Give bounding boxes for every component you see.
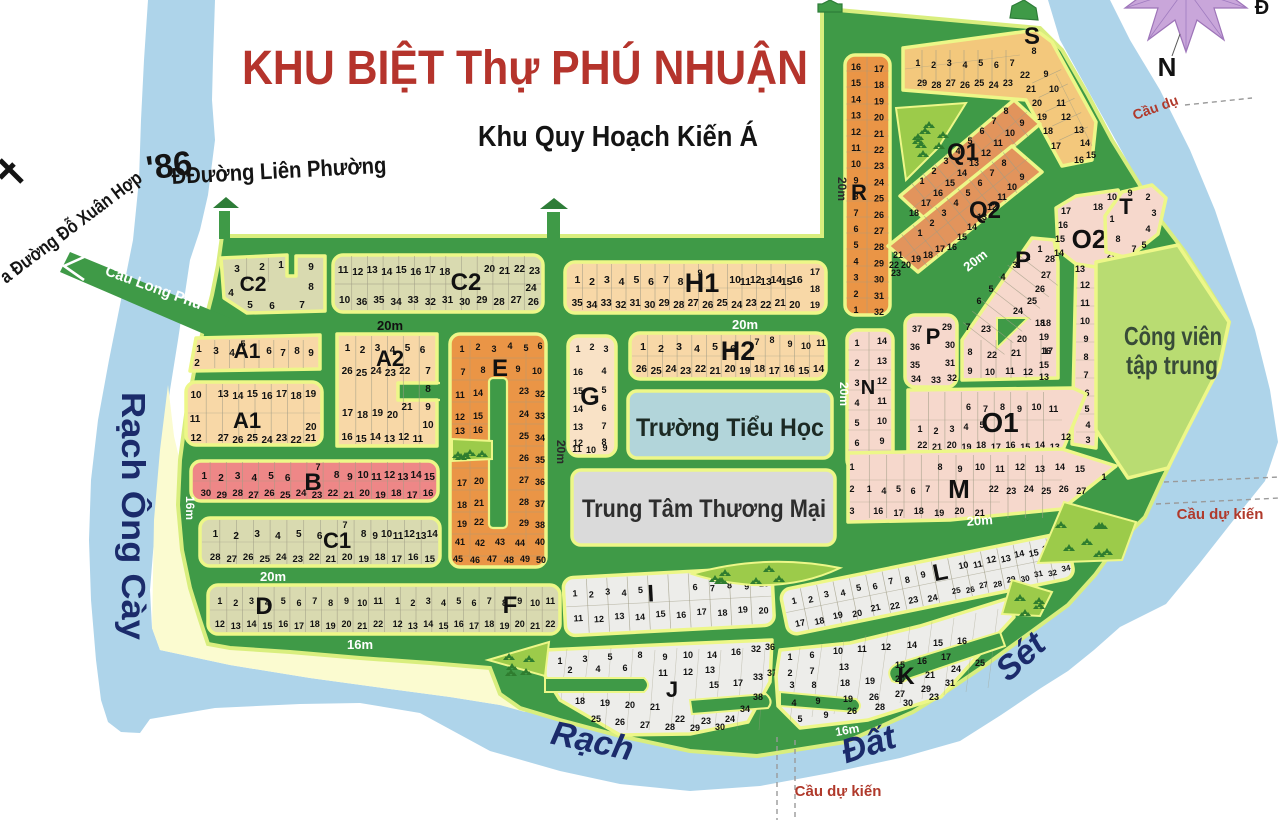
svg-text:20: 20: [484, 264, 496, 275]
svg-text:19: 19: [1039, 332, 1049, 342]
svg-text:4: 4: [963, 422, 968, 432]
svg-text:1: 1: [853, 305, 858, 315]
svg-text:1: 1: [572, 588, 578, 598]
svg-text:12: 12: [981, 148, 991, 158]
svg-text:8: 8: [480, 365, 485, 375]
svg-text:6: 6: [976, 296, 981, 306]
svg-text:6: 6: [420, 345, 426, 356]
svg-text:20: 20: [851, 608, 863, 620]
svg-text:23: 23: [907, 594, 919, 606]
svg-text:4: 4: [1145, 224, 1150, 234]
svg-text:3: 3: [789, 680, 794, 690]
svg-text:9: 9: [879, 436, 884, 446]
svg-text:12: 12: [881, 642, 891, 652]
svg-text:9: 9: [823, 710, 828, 720]
svg-text:Trung Tâm Thương Mại: Trung Tâm Thương Mại: [582, 495, 826, 523]
svg-text:18: 18: [814, 615, 826, 627]
svg-text:6: 6: [317, 531, 323, 542]
svg-text:35: 35: [373, 295, 385, 306]
svg-text:3: 3: [949, 424, 954, 434]
svg-text:C2: C2: [240, 273, 267, 296]
svg-text:3: 3: [676, 341, 682, 353]
svg-text:8: 8: [769, 335, 774, 345]
svg-text:36: 36: [356, 297, 368, 308]
svg-text:29: 29: [917, 78, 927, 88]
svg-text:32: 32: [615, 300, 627, 311]
svg-text:14: 14: [957, 168, 967, 178]
svg-text:16: 16: [1074, 155, 1084, 165]
svg-text:1: 1: [919, 176, 924, 186]
svg-text:20: 20: [359, 488, 370, 499]
svg-text:1: 1: [1101, 472, 1106, 482]
svg-text:32: 32: [874, 307, 884, 317]
svg-text:25: 25: [247, 433, 259, 444]
svg-text:16: 16: [1058, 220, 1068, 230]
svg-text:9: 9: [662, 652, 667, 662]
svg-text:8: 8: [361, 529, 367, 540]
svg-text:48: 48: [504, 555, 514, 565]
svg-text:7: 7: [925, 484, 930, 494]
svg-text:22: 22: [514, 264, 526, 275]
svg-text:5: 5: [978, 58, 983, 68]
svg-text:16: 16: [873, 506, 883, 516]
svg-text:12: 12: [1023, 367, 1033, 377]
svg-text:6: 6: [977, 178, 982, 188]
svg-text:1: 1: [278, 260, 284, 271]
svg-text:6: 6: [601, 403, 606, 413]
svg-text:19: 19: [810, 300, 820, 310]
svg-text:1: 1: [575, 344, 580, 354]
svg-text:5: 5: [988, 284, 993, 294]
svg-text:23: 23: [981, 324, 991, 334]
svg-text:7: 7: [460, 367, 465, 377]
svg-text:18: 18: [375, 552, 386, 563]
svg-text:13: 13: [415, 531, 427, 542]
svg-text:2: 2: [475, 342, 480, 352]
svg-text:A1: A1: [234, 340, 261, 363]
svg-text:3: 3: [603, 344, 608, 354]
svg-text:17: 17: [425, 265, 437, 276]
svg-text:4: 4: [854, 398, 859, 408]
svg-text:1: 1: [557, 656, 562, 666]
svg-text:21: 21: [530, 621, 540, 631]
svg-text:13: 13: [1039, 372, 1049, 382]
svg-text:18: 18: [840, 678, 850, 688]
svg-text:9: 9: [602, 443, 607, 453]
svg-text:23: 23: [519, 386, 529, 396]
svg-text:22: 22: [545, 619, 555, 629]
svg-text:11: 11: [190, 414, 201, 425]
svg-text:18: 18: [909, 208, 919, 218]
svg-text:10: 10: [877, 416, 887, 426]
svg-text:13: 13: [839, 662, 849, 672]
svg-text:19: 19: [326, 621, 336, 631]
svg-text:M: M: [948, 474, 970, 504]
svg-text:27: 27: [248, 490, 259, 501]
svg-text:9: 9: [372, 531, 378, 542]
svg-text:35: 35: [572, 298, 584, 309]
svg-text:50: 50: [536, 555, 546, 565]
svg-text:49: 49: [520, 554, 530, 564]
svg-text:11: 11: [857, 644, 867, 654]
svg-text:23: 23: [293, 554, 304, 565]
svg-text:10: 10: [1005, 128, 1015, 138]
svg-text:11: 11: [816, 338, 826, 348]
svg-text:3: 3: [1151, 208, 1156, 218]
svg-text:10: 10: [1031, 402, 1041, 412]
svg-text:16: 16: [957, 636, 967, 646]
svg-text:16: 16: [423, 488, 434, 499]
svg-text:15: 15: [438, 621, 448, 631]
svg-text:11: 11: [572, 444, 582, 454]
svg-text:24: 24: [951, 664, 961, 674]
svg-text:27: 27: [227, 554, 238, 565]
svg-text:26: 26: [702, 300, 714, 311]
svg-text:7: 7: [663, 274, 669, 286]
svg-text:E: E: [492, 355, 508, 382]
svg-text:2: 2: [589, 342, 594, 352]
svg-text:16: 16: [473, 425, 483, 435]
svg-text:27: 27: [946, 78, 956, 88]
svg-text:3: 3: [941, 208, 946, 218]
svg-text:23: 23: [746, 298, 758, 309]
svg-text:'86: '86: [144, 144, 195, 188]
svg-text:8: 8: [937, 462, 942, 472]
svg-text:16: 16: [784, 364, 796, 375]
svg-text:28: 28: [874, 242, 884, 252]
svg-text:26: 26: [1035, 284, 1045, 294]
svg-text:7: 7: [601, 421, 606, 431]
svg-text:8: 8: [1003, 106, 1008, 116]
svg-text:16: 16: [851, 62, 861, 72]
svg-text:10: 10: [801, 341, 811, 351]
svg-text:26: 26: [874, 210, 884, 220]
svg-text:J: J: [666, 677, 678, 702]
svg-text:3: 3: [853, 273, 858, 283]
svg-text:14: 14: [411, 470, 423, 481]
svg-text:4: 4: [441, 598, 446, 608]
svg-text:7: 7: [853, 208, 858, 218]
svg-text:37: 37: [535, 499, 545, 509]
svg-text:18: 18: [976, 440, 986, 450]
svg-text:Cầu dự kiến: Cầu dự kiến: [795, 783, 882, 800]
svg-text:14: 14: [813, 364, 825, 375]
svg-text:17: 17: [276, 389, 288, 400]
svg-text:24: 24: [1013, 306, 1023, 316]
svg-text:31: 31: [442, 295, 454, 306]
svg-text:15: 15: [1055, 234, 1065, 244]
svg-text:23: 23: [529, 266, 541, 277]
svg-text:32: 32: [535, 389, 545, 399]
svg-text:14: 14: [246, 619, 256, 629]
svg-text:25: 25: [519, 431, 529, 441]
svg-text:36: 36: [910, 342, 920, 352]
svg-text:16: 16: [573, 367, 583, 377]
svg-text:6: 6: [471, 598, 476, 608]
svg-text:4: 4: [1085, 420, 1090, 430]
svg-text:3: 3: [491, 344, 496, 354]
svg-text:Cầu dự kiến: Cầu dự kiến: [1177, 506, 1264, 523]
svg-text:27: 27: [511, 295, 523, 306]
svg-text:11: 11: [573, 613, 583, 623]
svg-text:15: 15: [851, 78, 861, 88]
svg-text:20: 20: [387, 410, 399, 421]
svg-text:14: 14: [473, 388, 483, 398]
svg-text:21: 21: [1026, 84, 1036, 94]
svg-text:17: 17: [457, 478, 467, 488]
svg-text:18: 18: [923, 250, 933, 260]
svg-text:3: 3: [213, 346, 219, 357]
svg-text:26: 26: [847, 706, 857, 716]
svg-text:15: 15: [957, 232, 967, 242]
svg-text:11: 11: [413, 434, 424, 445]
svg-text:7: 7: [809, 666, 814, 676]
svg-text:43: 43: [495, 537, 505, 547]
svg-text:20m: 20m: [260, 569, 286, 584]
svg-text:9: 9: [1043, 69, 1048, 79]
svg-text:17: 17: [921, 198, 931, 208]
svg-text:19: 19: [832, 609, 844, 621]
svg-text:7: 7: [710, 583, 716, 593]
svg-text:Khu Quy Hoạch Kiến Á: Khu Quy Hoạch Kiến Á: [478, 119, 758, 153]
svg-text:14: 14: [707, 650, 717, 660]
svg-text:D: D: [255, 593, 272, 620]
svg-text:20: 20: [789, 300, 801, 311]
svg-text:27: 27: [1076, 486, 1086, 496]
svg-text:20: 20: [901, 260, 911, 270]
svg-text:14: 14: [907, 640, 917, 650]
svg-text:9: 9: [967, 366, 972, 376]
svg-text:18: 18: [484, 619, 494, 629]
svg-text:13: 13: [367, 265, 379, 276]
svg-text:34: 34: [391, 297, 403, 308]
svg-text:5: 5: [601, 385, 606, 395]
svg-text:24: 24: [1024, 484, 1034, 494]
svg-text:32: 32: [425, 297, 437, 308]
svg-text:23: 23: [874, 161, 884, 171]
svg-text:16: 16: [791, 274, 803, 286]
svg-text:2: 2: [854, 358, 859, 368]
svg-text:2: 2: [929, 218, 934, 228]
svg-text:12: 12: [1061, 432, 1071, 442]
svg-text:35: 35: [535, 455, 545, 465]
svg-text:10: 10: [985, 367, 995, 377]
svg-text:10: 10: [530, 598, 540, 608]
svg-text:12: 12: [683, 667, 693, 677]
svg-text:13: 13: [877, 356, 887, 366]
svg-text:C1: C1: [323, 528, 351, 553]
svg-text:3: 3: [605, 587, 611, 597]
svg-text:40: 40: [535, 537, 545, 547]
svg-text:2: 2: [787, 668, 792, 678]
svg-text:4: 4: [621, 588, 627, 598]
svg-text:16: 16: [917, 656, 927, 666]
svg-text:28: 28: [673, 300, 685, 311]
svg-text:11: 11: [546, 596, 556, 606]
svg-text:Đ: Đ: [1255, 0, 1269, 19]
svg-text:8: 8: [1115, 234, 1120, 244]
svg-text:20m: 20m: [837, 382, 851, 406]
svg-text:21: 21: [650, 702, 660, 712]
svg-text:25: 25: [651, 366, 663, 377]
svg-text:22: 22: [474, 517, 484, 527]
svg-text:15: 15: [1039, 360, 1049, 370]
svg-text:19: 19: [739, 366, 751, 377]
svg-text:2: 2: [1145, 192, 1150, 202]
svg-text:13: 13: [1000, 553, 1012, 565]
svg-text:17: 17: [392, 554, 403, 565]
svg-text:11: 11: [455, 390, 465, 400]
svg-text:24: 24: [276, 552, 287, 563]
svg-text:20: 20: [474, 476, 484, 486]
svg-text:20: 20: [758, 605, 769, 616]
svg-text:5: 5: [638, 585, 644, 595]
svg-text:11: 11: [995, 464, 1005, 474]
svg-text:23: 23: [929, 692, 939, 702]
svg-text:1: 1: [849, 462, 854, 472]
svg-text:2: 2: [931, 166, 936, 176]
svg-text:31: 31: [630, 298, 642, 309]
svg-text:10: 10: [190, 390, 202, 401]
svg-text:21: 21: [893, 250, 903, 260]
svg-text:12: 12: [455, 412, 465, 422]
svg-text:19: 19: [865, 676, 875, 686]
svg-text:20: 20: [341, 619, 351, 629]
svg-text:21: 21: [925, 670, 935, 680]
svg-text:17: 17: [874, 64, 884, 74]
svg-text:28: 28: [931, 80, 941, 90]
svg-text:11: 11: [1080, 298, 1090, 308]
svg-text:16: 16: [410, 267, 422, 278]
svg-text:8: 8: [637, 650, 642, 660]
svg-text:7: 7: [989, 168, 994, 178]
svg-text:5: 5: [853, 240, 858, 250]
svg-text:47: 47: [487, 554, 497, 564]
svg-text:10: 10: [1080, 316, 1090, 326]
svg-text:2: 2: [589, 589, 595, 599]
svg-text:1: 1: [459, 344, 464, 354]
svg-text:12: 12: [1015, 462, 1025, 472]
svg-text:5: 5: [607, 652, 612, 662]
svg-text:8: 8: [425, 384, 431, 395]
svg-text:34: 34: [535, 433, 545, 443]
svg-text:26: 26: [342, 366, 354, 377]
svg-text:14: 14: [877, 336, 887, 346]
svg-text:3: 3: [235, 471, 241, 482]
svg-text:26: 26: [960, 80, 970, 90]
svg-text:25: 25: [1027, 296, 1037, 306]
svg-text:P: P: [926, 324, 941, 349]
svg-text:15: 15: [356, 434, 368, 445]
svg-text:5: 5: [247, 300, 253, 311]
svg-text:16: 16: [1041, 346, 1051, 356]
svg-text:4: 4: [619, 276, 625, 288]
svg-text:6: 6: [622, 663, 627, 673]
svg-text:6: 6: [966, 402, 971, 412]
svg-text:5: 5: [854, 418, 859, 428]
svg-text:7: 7: [1083, 370, 1088, 380]
svg-text:30: 30: [201, 488, 212, 499]
svg-text:27: 27: [688, 298, 700, 309]
svg-text:28: 28: [665, 722, 675, 732]
svg-text:26: 26: [636, 364, 648, 375]
svg-text:6: 6: [296, 598, 301, 608]
svg-text:1: 1: [574, 274, 580, 286]
svg-text:5: 5: [268, 471, 274, 482]
svg-text:25: 25: [874, 194, 884, 204]
svg-text:22: 22: [760, 300, 772, 311]
svg-text:13: 13: [384, 434, 396, 445]
svg-text:1: 1: [917, 228, 922, 238]
svg-text:8: 8: [294, 346, 300, 357]
svg-text:20: 20: [1032, 98, 1042, 108]
svg-text:24: 24: [989, 80, 999, 90]
svg-text:27: 27: [218, 433, 230, 444]
svg-text:11: 11: [851, 143, 861, 153]
svg-text:5: 5: [296, 529, 302, 540]
svg-text:7: 7: [991, 116, 996, 126]
svg-text:2: 2: [218, 473, 224, 484]
svg-text:29: 29: [659, 298, 671, 309]
svg-text:8: 8: [308, 282, 314, 293]
svg-text:15: 15: [709, 680, 719, 690]
svg-text:10: 10: [422, 420, 434, 431]
svg-text:26: 26: [615, 717, 625, 727]
svg-text:15: 15: [424, 472, 436, 483]
svg-text:21: 21: [401, 402, 413, 413]
svg-text:20: 20: [342, 552, 353, 563]
svg-text:10: 10: [358, 470, 370, 481]
svg-text:2: 2: [233, 531, 239, 542]
svg-text:2: 2: [259, 262, 265, 273]
svg-text:4: 4: [595, 664, 600, 674]
svg-text:10: 10: [683, 650, 693, 660]
svg-text:46: 46: [470, 555, 480, 565]
svg-text:19: 19: [359, 554, 370, 565]
svg-text:24: 24: [725, 714, 735, 724]
svg-text:36: 36: [765, 642, 775, 652]
svg-text:22: 22: [309, 552, 320, 563]
svg-text:25: 25: [975, 658, 985, 668]
svg-text:11: 11: [393, 531, 404, 542]
svg-text:15: 15: [396, 265, 408, 276]
svg-text:21: 21: [357, 621, 367, 631]
svg-text:8: 8: [1001, 158, 1006, 168]
svg-text:20: 20: [947, 440, 957, 450]
svg-text:15: 15: [1075, 464, 1085, 474]
svg-text:5: 5: [523, 343, 528, 353]
svg-text:15: 15: [798, 366, 810, 377]
svg-text:10: 10: [833, 646, 843, 656]
svg-text:1: 1: [202, 471, 208, 482]
svg-text:22: 22: [917, 440, 927, 450]
svg-text:25: 25: [717, 298, 729, 309]
svg-text:32: 32: [751, 644, 761, 654]
svg-text:17: 17: [893, 508, 903, 518]
svg-text:6: 6: [537, 341, 542, 351]
svg-text:19: 19: [843, 694, 853, 704]
svg-text:9: 9: [815, 696, 820, 706]
svg-text:6: 6: [809, 650, 814, 660]
svg-text:21: 21: [710, 366, 722, 377]
svg-text:24: 24: [731, 300, 743, 311]
svg-text:A1: A1: [233, 408, 261, 433]
svg-text:10: 10: [381, 529, 393, 540]
svg-text:8: 8: [328, 598, 333, 608]
svg-text:8: 8: [967, 347, 972, 357]
svg-text:10: 10: [586, 445, 596, 455]
svg-text:4: 4: [962, 60, 967, 70]
